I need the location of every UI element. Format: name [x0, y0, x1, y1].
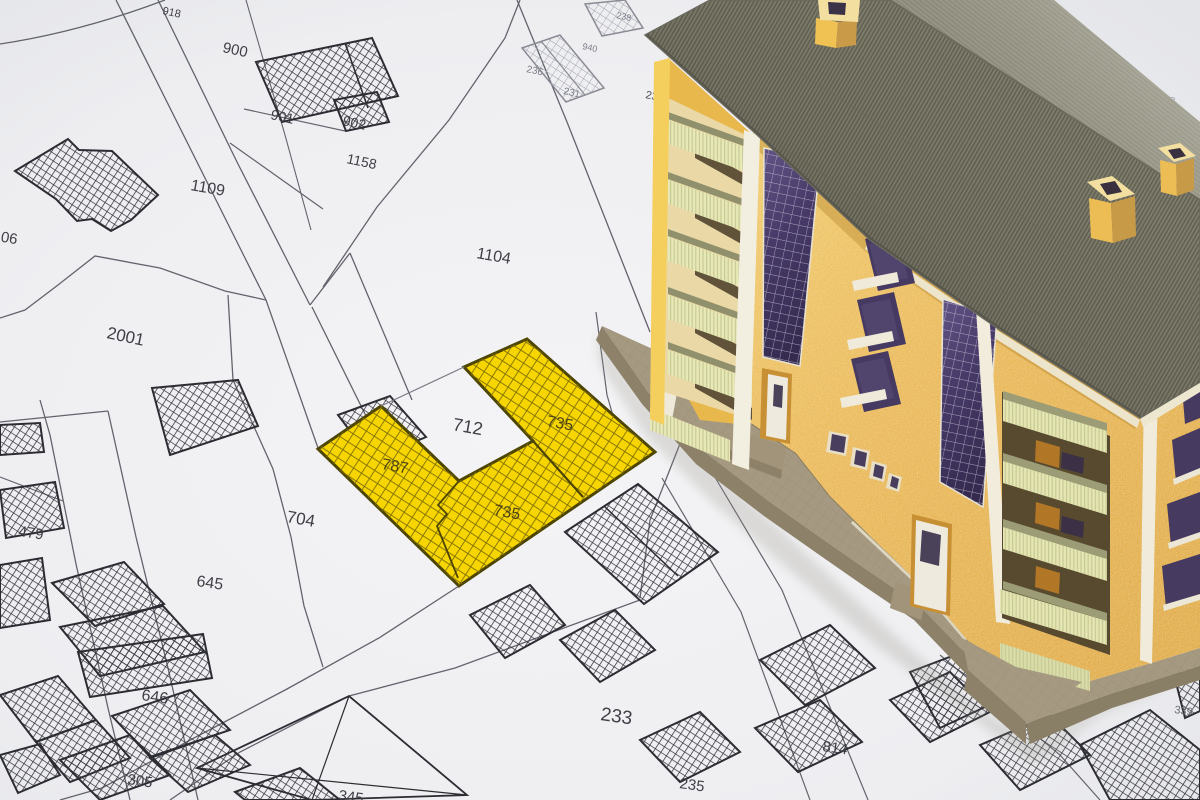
svg-text:233: 233: [599, 704, 633, 729]
svg-text:345: 345: [337, 787, 364, 800]
svg-text:106: 106: [0, 227, 19, 248]
svg-text:814: 814: [821, 738, 848, 758]
svg-text:235: 235: [678, 775, 705, 795]
svg-text:479: 479: [17, 523, 44, 543]
svg-text:305: 305: [126, 771, 153, 791]
svg-text:339: 339: [1174, 704, 1194, 718]
